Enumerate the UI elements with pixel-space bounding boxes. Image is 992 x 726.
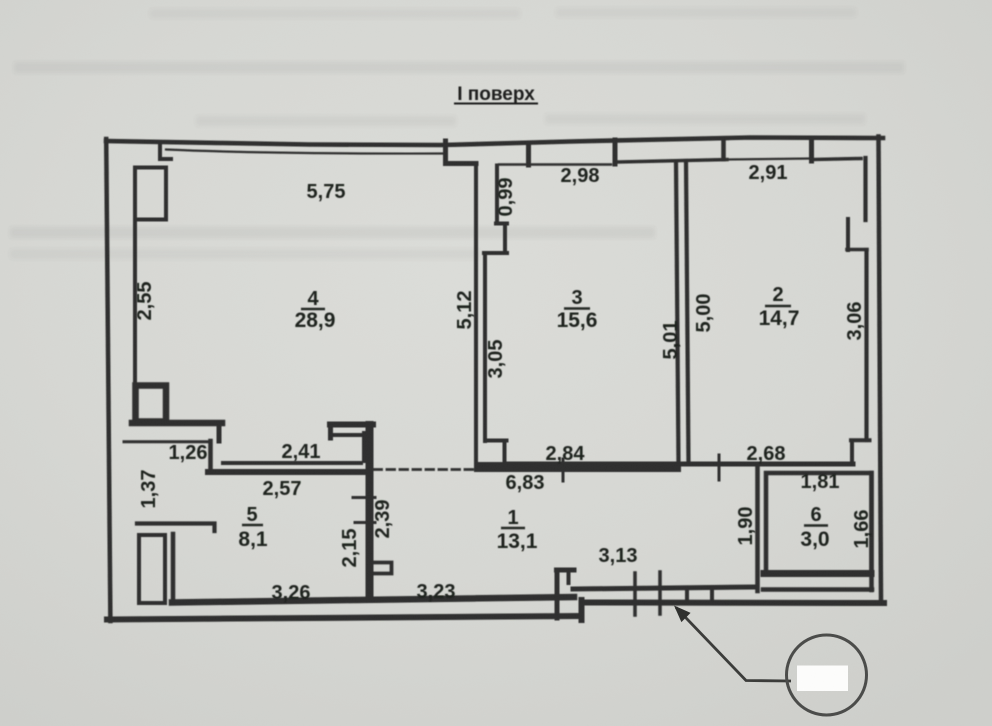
svg-text:2,98: 2,98 [561,165,600,187]
svg-text:5: 5 [246,504,257,526]
svg-text:І поверх: І поверх [457,84,535,105]
svg-text:2,91: 2,91 [749,162,788,184]
svg-text:2,84: 2,84 [546,443,586,465]
svg-text:2,57: 2,57 [263,478,302,500]
svg-text:2,55: 2,55 [134,282,156,321]
svg-text:3,06: 3,06 [844,302,866,341]
svg-text:1,37: 1,37 [138,470,160,509]
svg-text:3,0: 3,0 [800,528,829,551]
svg-text:1,81: 1,81 [801,471,840,493]
svg-text:2: 2 [772,284,783,306]
svg-text:2,15: 2,15 [339,529,361,568]
svg-text:4: 4 [307,288,319,310]
svg-text:5,00: 5,00 [693,294,715,333]
svg-text:14,7: 14,7 [759,307,800,330]
svg-text:1,26: 1,26 [169,442,208,464]
svg-text:3: 3 [571,287,582,309]
svg-text:28,9: 28,9 [295,309,336,332]
svg-text:15,6: 15,6 [557,309,598,332]
svg-text:0,99: 0,99 [495,178,517,217]
svg-text:5,01: 5,01 [660,321,682,360]
svg-text:6: 6 [810,504,821,526]
svg-text:8,1: 8,1 [238,528,268,551]
svg-text:3,05: 3,05 [485,340,507,379]
svg-text:6,83: 6,83 [506,472,545,494]
svg-text:2,39: 2,39 [372,500,394,539]
svg-text:2,41: 2,41 [282,441,321,463]
svg-text:3,26: 3,26 [272,582,311,604]
svg-text:2,68: 2,68 [747,443,786,465]
svg-text:3,13: 3,13 [599,545,638,567]
svg-text:3,23: 3,23 [417,581,456,603]
svg-text:1,90: 1,90 [735,507,757,546]
svg-text:13,1: 13,1 [497,530,538,553]
svg-text:5,12: 5,12 [454,291,476,330]
svg-text:1,66: 1,66 [851,510,873,549]
svg-text:5,75: 5,75 [307,181,346,203]
svg-text:1: 1 [507,507,518,529]
